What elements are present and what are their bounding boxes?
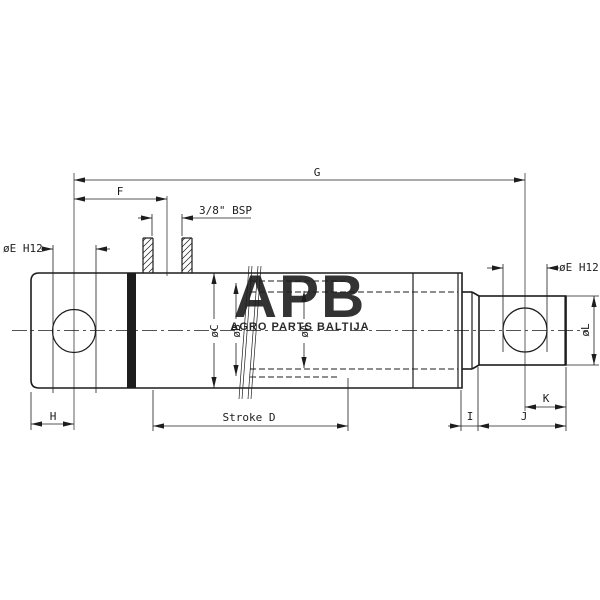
dim-k: K (525, 392, 566, 410)
dim-label-port: 3/8" BSP (199, 204, 252, 217)
dim-stroke: Stroke D (153, 378, 348, 431)
dim-label-g: G (314, 166, 321, 179)
dim-f: F (74, 185, 167, 202)
dim-eye-right: øE H12 (487, 261, 599, 352)
hydraulic-cylinder-technical-drawing: APB AGRO PARTS BALTIJA (0, 0, 600, 600)
dim-label-i: I (467, 410, 474, 423)
dim-label-l: øL (579, 323, 592, 337)
dim-g: G (74, 166, 525, 183)
dim-label-c: øC (208, 324, 221, 337)
dim-label-a: øA (298, 324, 311, 338)
dim-label-e-right: øE H12 (559, 261, 599, 274)
dim-port-thread: 3/8" BSP (138, 204, 252, 236)
dim-label-k: K (543, 392, 550, 405)
port-fitting (143, 196, 192, 276)
dim-eye-left: øE H12 (3, 242, 110, 393)
drawing-canvas: APB AGRO PARTS BALTIJA (0, 0, 600, 600)
port-hatching (143, 238, 192, 272)
dim-label-j: J (521, 410, 528, 423)
dim-label-f: F (117, 185, 124, 198)
dim-h: H (31, 392, 74, 430)
dim-label-stroke: Stroke D (223, 411, 276, 424)
weld-band (127, 273, 136, 388)
dim-c: øC (208, 273, 221, 388)
dim-label-b: øB (230, 324, 243, 338)
dim-label-h: H (50, 410, 57, 423)
dim-label-e-left: øE H12 (3, 242, 43, 255)
